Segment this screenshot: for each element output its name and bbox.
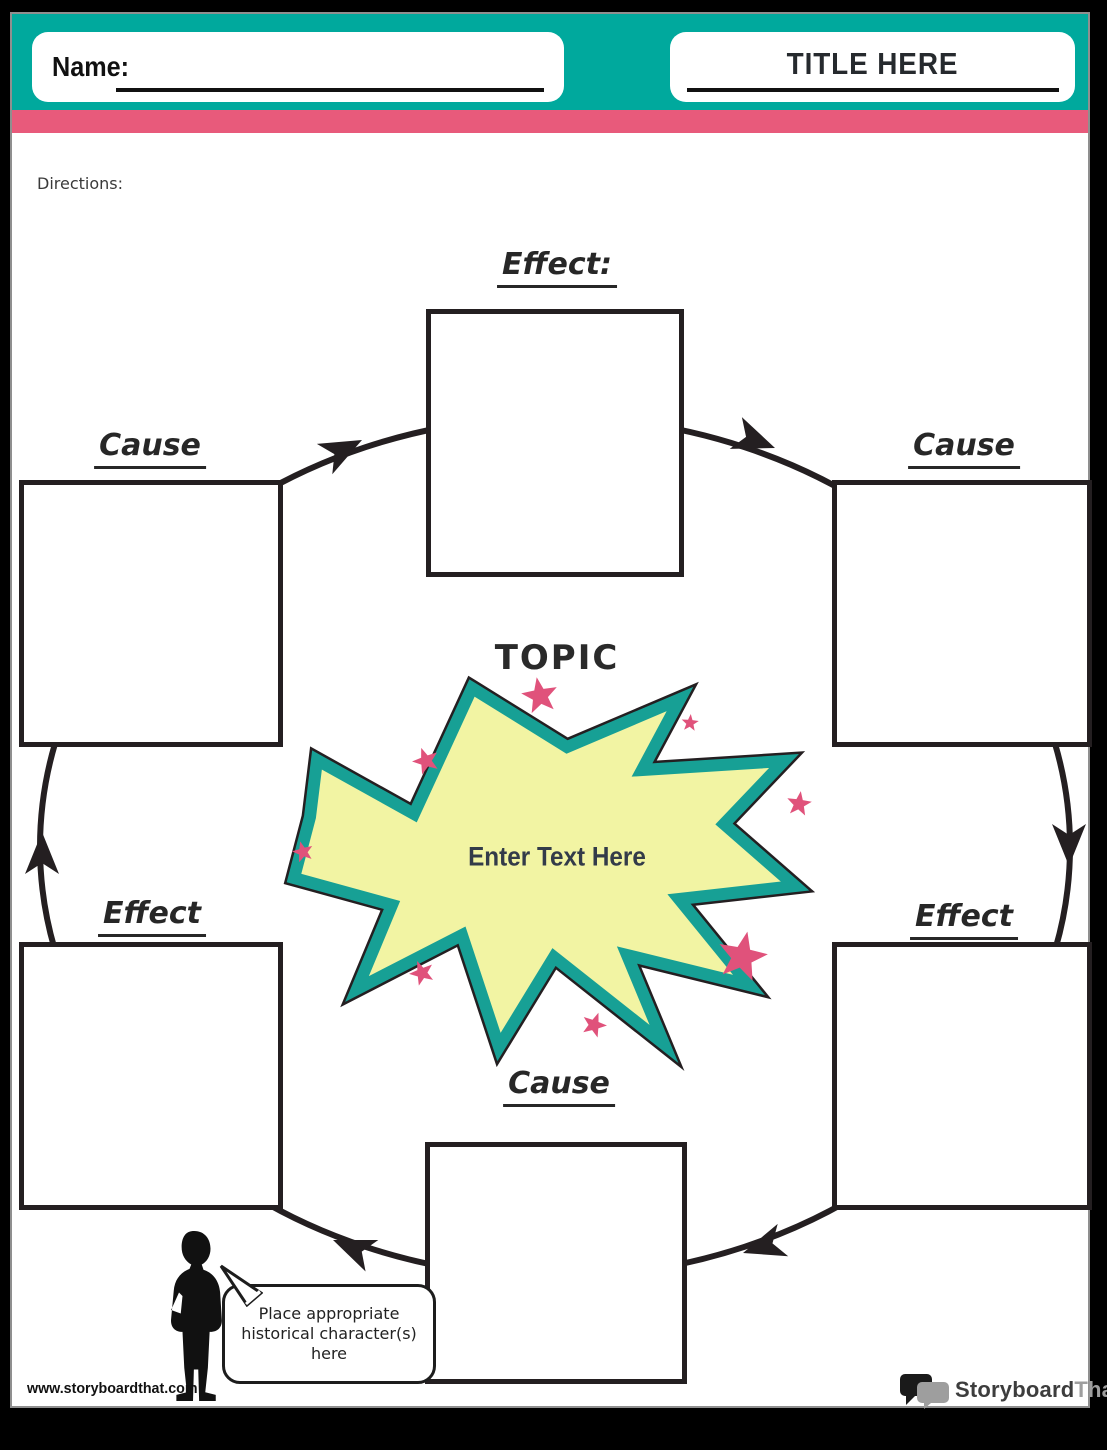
- label-cause-left: Cause: [94, 428, 206, 469]
- logo-speech-bubbles-icon: [900, 1370, 950, 1410]
- effect-box-bottom-right[interactable]: [832, 942, 1092, 1210]
- cause-box-bottom[interactable]: [425, 1142, 687, 1384]
- logo-front-bubble: [917, 1382, 949, 1409]
- effect-box-top[interactable]: [426, 309, 684, 577]
- star-icon: [681, 713, 699, 731]
- character-shape: [171, 1231, 222, 1401]
- website-url: www.storyboardthat.com: [27, 1380, 197, 1397]
- topic-heading: TOPIC: [495, 638, 620, 678]
- label-effect-bottom-left: Effect: [98, 896, 206, 937]
- star-icon: [785, 789, 813, 816]
- label-effect-top: Effect:: [497, 247, 617, 288]
- topic-text-input[interactable]: Enter Text Here: [468, 842, 646, 873]
- speech-bubble-tail: [217, 1263, 263, 1307]
- cause-box-right[interactable]: [832, 480, 1092, 747]
- cause-box-left[interactable]: [19, 480, 283, 747]
- star-icon: [519, 674, 561, 714]
- worksheet-page: Name: TITLE HERE Directions:: [10, 12, 1090, 1408]
- speech-bubble-tail-shape: [221, 1266, 261, 1305]
- storyboardthat-logo: StoryboardThat: [900, 1370, 1107, 1410]
- logo-text-storyboard: Storyboard: [955, 1377, 1074, 1402]
- effect-box-bottom-left[interactable]: [19, 942, 283, 1210]
- logo-text-that: That: [1074, 1377, 1107, 1402]
- speech-bubble-text: Place appropriate historical character(s…: [233, 1304, 425, 1364]
- label-effect-bottom-right: Effect: [910, 899, 1018, 940]
- star-icon: [579, 1009, 610, 1040]
- label-cause-right: Cause: [908, 428, 1020, 469]
- label-cause-bottom: Cause: [503, 1066, 615, 1107]
- speech-bubble[interactable]: Place appropriate historical character(s…: [222, 1284, 436, 1384]
